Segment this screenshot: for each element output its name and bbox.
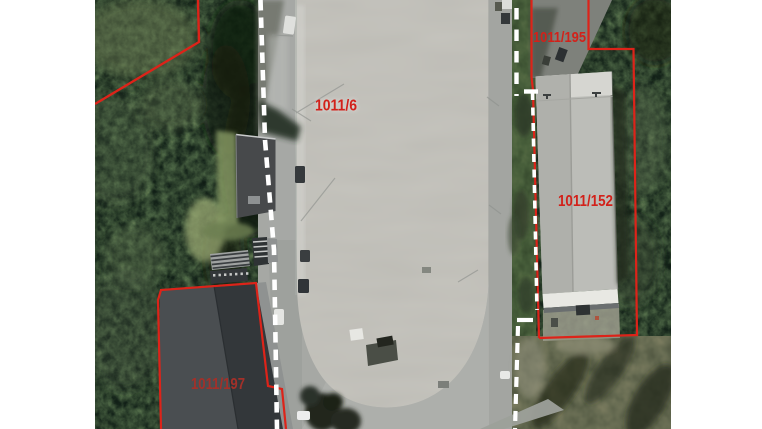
svg-text:1011/6: 1011/6: [315, 98, 357, 115]
svg-text:1011/152: 1011/152: [558, 193, 613, 210]
svg-text:1011/197: 1011/197: [191, 376, 245, 393]
svg-text:1011/195: 1011/195: [533, 29, 586, 46]
